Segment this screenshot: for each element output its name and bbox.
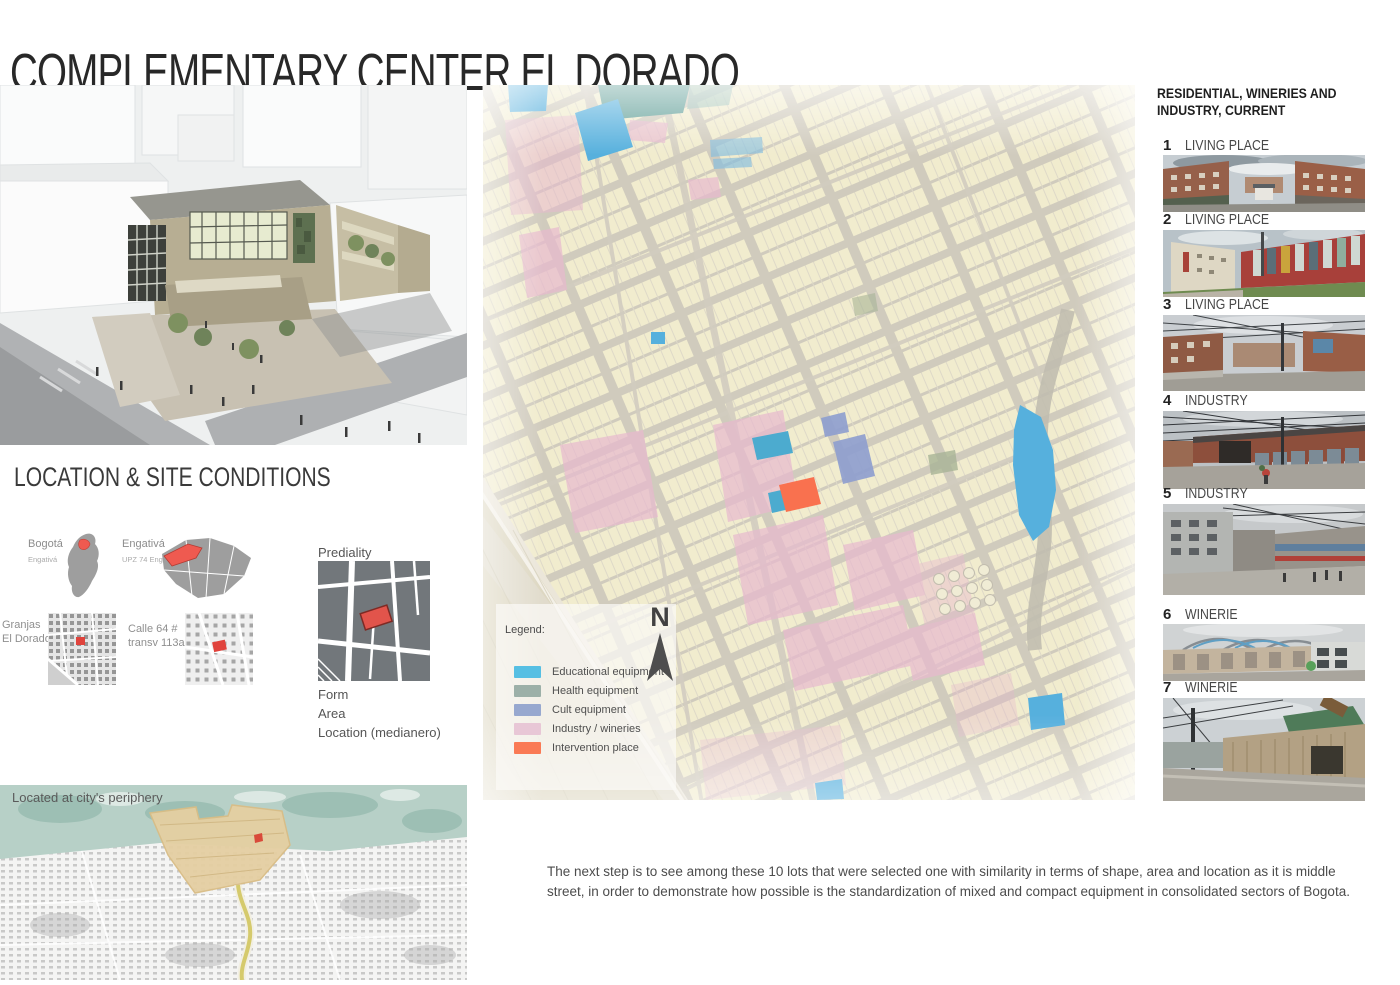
calle64-label: Calle 64 # transv 113a.	[128, 622, 188, 651]
legend-swatch-cult	[514, 704, 541, 716]
photo-industry-4	[1163, 411, 1365, 489]
item-7-label: 7WINERIE	[1163, 679, 1249, 697]
legend-row-cult: Cult equipment	[514, 700, 664, 719]
north-arrow-icon	[645, 631, 675, 683]
legend-swatch-educational	[514, 666, 541, 678]
item-5-label: 5INDUSTRY	[1163, 485, 1261, 503]
periphery-map	[0, 785, 467, 980]
granjas-highlight	[76, 637, 85, 645]
photo-winerie-7	[1163, 698, 1365, 801]
photo-living-place-3	[1163, 315, 1365, 391]
project-render-image	[0, 85, 467, 445]
prediality-title: Prediality	[318, 545, 371, 560]
legend-row-industry: Industry / wineries	[514, 719, 664, 738]
legend-swatch-health	[514, 685, 541, 697]
legend-swatch-intervention	[514, 742, 541, 754]
calle64-map	[185, 613, 253, 690]
legend-title: Legend:	[505, 624, 545, 636]
item-6-label: 6WINERIE	[1163, 606, 1249, 624]
prediality-map	[318, 561, 430, 686]
granjas-label: Granjas El Dorado	[2, 618, 51, 647]
granjas-map	[48, 613, 116, 690]
right-column-heading: RESIDENTIAL, WINERIES AND INDUSTRY, CURR…	[1157, 85, 1361, 119]
engativa-map	[158, 536, 254, 607]
photo-living-place-1	[1163, 155, 1365, 212]
item-4-label: 4INDUSTRY	[1163, 392, 1261, 410]
north-arrow: N	[641, 604, 679, 688]
photo-winerie-6	[1163, 624, 1365, 681]
periphery-caption: Located at city's periphery	[12, 790, 163, 805]
prediality-notes: Form Area Location (medianero)	[318, 686, 441, 743]
item-1-label: 1LIVING PLACE	[1163, 137, 1288, 155]
photo-industry-5	[1163, 504, 1365, 595]
location-heading: LOCATION & SITE CONDITIONS	[14, 462, 420, 493]
legend-row-intervention: Intervention place	[514, 738, 664, 757]
item-2-label: 2LIVING PLACE	[1163, 211, 1288, 229]
legend-swatch-industry	[514, 723, 541, 735]
render-scene	[0, 85, 467, 445]
footer-description: The next step is to see among these 10 l…	[547, 862, 1375, 903]
photo-living-place-2	[1163, 230, 1365, 297]
item-3-label: 3LIVING PLACE	[1163, 296, 1288, 314]
bogota-map	[56, 530, 112, 607]
